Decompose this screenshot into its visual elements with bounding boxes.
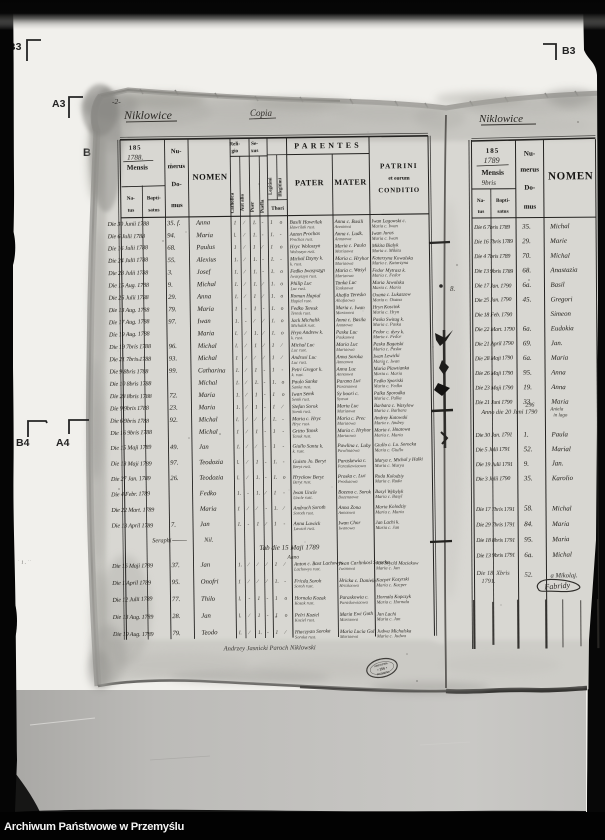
svg-text:-: - bbox=[284, 579, 286, 585]
svg-text:49.: 49. bbox=[170, 444, 179, 451]
svg-text:1: 1 bbox=[255, 429, 258, 435]
svg-text:Thilo: Thilo bbox=[201, 596, 216, 603]
svg-text:Nu-: Nu- bbox=[524, 150, 536, 158]
svg-text:1.: 1. bbox=[524, 431, 530, 439]
svg-text:Alexius: Alexius bbox=[196, 256, 217, 263]
svg-text:-: - bbox=[281, 367, 283, 373]
svg-text:Die 30 Junii 1788: Die 30 Junii 1788 bbox=[107, 221, 149, 228]
svg-text:1: 1 bbox=[255, 392, 258, 398]
svg-text:Jan: Jan bbox=[199, 444, 209, 451]
svg-text:Puer: Puer bbox=[251, 201, 256, 212]
svg-text:1.: 1. bbox=[238, 562, 242, 568]
svg-text:-: - bbox=[280, 257, 282, 263]
svg-text:Andrzey Jasnicki Paroch Niklo: Andrzey Jasnicki Paroch Niklowski bbox=[223, 644, 316, 652]
svg-text:-: - bbox=[245, 306, 247, 312]
svg-text:Luc rust.: Luc rust. bbox=[290, 360, 307, 365]
svg-text:Jan: Jan bbox=[201, 613, 211, 620]
svg-text:1.: 1. bbox=[271, 306, 275, 312]
svg-text:Tankaowa: Tankaowa bbox=[335, 285, 354, 290]
svg-text:Maria c. Oxana: Maria c. Oxana bbox=[372, 297, 403, 302]
svg-text:-: - bbox=[282, 429, 284, 435]
svg-text:1: 1 bbox=[275, 562, 278, 568]
svg-text:Die 1 April 1789: Die 1 April 1789 bbox=[111, 580, 151, 587]
svg-text:Paraskowiaowa: Paraskowiaowa bbox=[339, 600, 369, 605]
svg-text:6a.: 6a. bbox=[524, 551, 533, 559]
svg-text:l.: l. bbox=[239, 613, 242, 619]
svg-text:Maria c. Marya: Maria c. Marya bbox=[374, 463, 405, 468]
svg-text:Eudokia: Eudokia bbox=[550, 325, 575, 332]
svg-text:Die 13 Aug. 1789: Die 13 Aug. 1789 bbox=[112, 615, 154, 621]
svg-text:45.: 45. bbox=[523, 296, 532, 304]
svg-text:Luc rust.: Luc rust. bbox=[290, 347, 307, 352]
svg-text:-: - bbox=[263, 306, 265, 312]
svg-text:Annaowa: Annaowa bbox=[334, 236, 352, 241]
svg-text:Die 25 Jan. 1790: Die 25 Jan. 1790 bbox=[473, 297, 511, 304]
svg-text:Paraskewiaowa: Paraskewiaowa bbox=[337, 463, 367, 468]
svg-text:Die 13 Maji 1789: Die 13 Maji 1789 bbox=[110, 461, 152, 467]
svg-text:1.: 1. bbox=[273, 459, 277, 465]
svg-text:Die 30 Jan. 1791: Die 30 Jan. 1791 bbox=[474, 432, 512, 439]
svg-text:in lago: in lago bbox=[553, 413, 568, 418]
svg-text:A3: A3 bbox=[52, 98, 66, 110]
svg-text:1: 1 bbox=[254, 306, 257, 312]
svg-text:1.: 1. bbox=[236, 380, 240, 386]
svg-text:Maria: Maria bbox=[551, 536, 570, 543]
svg-text:Die 22 Mart. 1789: Die 22 Mart. 1789 bbox=[110, 508, 154, 514]
svg-text:99.: 99. bbox=[169, 368, 178, 375]
svg-text:Michal: Michal bbox=[551, 505, 572, 512]
svg-text:19.: 19. bbox=[523, 383, 532, 391]
svg-text:-: - bbox=[267, 613, 269, 619]
svg-text:1.: 1. bbox=[253, 269, 257, 275]
svg-text:Niklowice: Niklowice bbox=[123, 108, 173, 122]
svg-text:3.: 3. bbox=[167, 269, 173, 276]
svg-text:1.: 1. bbox=[258, 630, 262, 636]
svg-text:1: 1 bbox=[236, 429, 239, 435]
svg-text:1.: 1. bbox=[236, 405, 240, 411]
svg-text:1791.: 1791. bbox=[482, 578, 496, 585]
svg-text:l.: l. bbox=[234, 233, 237, 239]
svg-text:Reli-: Reli- bbox=[229, 141, 240, 147]
svg-text:185: 185 bbox=[129, 145, 142, 152]
svg-text:1.: 1. bbox=[236, 444, 240, 450]
svg-text:84.: 84. bbox=[524, 520, 533, 528]
svg-text:Basil: Basil bbox=[550, 282, 564, 289]
svg-text:Die 21 April 1790: Die 21 April 1790 bbox=[474, 341, 514, 348]
svg-text:1.: 1. bbox=[253, 282, 257, 288]
svg-text:Jan.: Jan. bbox=[552, 461, 564, 468]
svg-text:o: o bbox=[281, 306, 284, 312]
svg-text:-: - bbox=[283, 490, 285, 496]
svg-text:1.: 1. bbox=[254, 331, 258, 337]
svg-text:Josef: Josef bbox=[197, 269, 212, 277]
svg-text:Die 9 9bris 1788: Die 9 9bris 1788 bbox=[109, 406, 149, 413]
svg-text:Aniela: Aniela bbox=[549, 407, 564, 412]
svg-text:Maria c. Maria: Maria c. Maria bbox=[373, 432, 403, 437]
svg-text:Michal: Michal bbox=[197, 355, 217, 362]
svg-text:Anna: Anna bbox=[550, 369, 566, 376]
svg-text:Teresk rust.: Teresk rust. bbox=[291, 310, 311, 315]
svg-text:Die 21 Juni 1790: Die 21 Juni 1790 bbox=[474, 400, 512, 407]
svg-text:Michal: Michal bbox=[551, 551, 572, 559]
svg-text:mus: mus bbox=[524, 203, 537, 211]
svg-text:Nil.: Nil. bbox=[203, 537, 213, 544]
svg-text:1: 1 bbox=[275, 630, 278, 636]
svg-text:MATER: MATER bbox=[334, 178, 366, 187]
svg-text:1.: 1. bbox=[271, 257, 275, 263]
svg-text:Marie: Marie bbox=[549, 238, 567, 245]
svg-text:Maria c. Fedor: Maria c. Fedor bbox=[372, 334, 401, 339]
svg-text:Na-: Na- bbox=[127, 196, 135, 202]
svg-text:Anna: Anna bbox=[550, 384, 566, 391]
svg-text:tus: tus bbox=[478, 209, 485, 215]
svg-text:79.: 79. bbox=[172, 630, 181, 637]
svg-text:1: 1 bbox=[274, 490, 277, 496]
svg-text:55.: 55. bbox=[168, 257, 177, 264]
svg-text:9bris: 9bris bbox=[482, 179, 497, 187]
svg-text:Onofri: Onofri bbox=[201, 578, 219, 586]
svg-text:Michalik rust.: Michalik rust. bbox=[290, 323, 316, 328]
svg-text:gio: gio bbox=[231, 148, 238, 154]
svg-text:1: 1 bbox=[256, 522, 259, 528]
svg-text:35.: 35. bbox=[521, 222, 531, 230]
svg-text:-: - bbox=[262, 257, 264, 263]
svg-text:l.: l. bbox=[239, 630, 242, 636]
svg-text:1: 1 bbox=[238, 579, 241, 585]
svg-text:Die 26 Julii 1788: Die 26 Julii 1788 bbox=[108, 295, 149, 302]
svg-text:Mariaowa: Mariaowa bbox=[336, 421, 356, 426]
svg-text:Maria c. Hryn: Maria c. Hryn bbox=[372, 309, 400, 314]
svg-text:Sanka rust.: Sanka rust. bbox=[292, 384, 312, 389]
svg-text:o: o bbox=[280, 269, 283, 275]
svg-text:-: - bbox=[282, 444, 284, 450]
svg-text:Syowa: Syowa bbox=[337, 396, 349, 401]
svg-text:Hapial rust.: Hapial rust. bbox=[290, 298, 312, 303]
svg-text:296: 296 bbox=[525, 403, 534, 409]
svg-text:Die 26 Maji 1790: Die 26 Maji 1790 bbox=[474, 371, 513, 377]
svg-text:-: - bbox=[264, 392, 266, 398]
svg-text:Die 15 Maji 1789: Die 15 Maji 1789 bbox=[109, 445, 151, 452]
svg-text:PATRINI: PATRINI bbox=[380, 162, 418, 170]
svg-text:Maria c. Iwan: Maria c. Iwan bbox=[372, 358, 400, 363]
svg-text:Die 6 7bris 1789: Die 6 7bris 1789 bbox=[473, 225, 510, 231]
svg-text:1: 1 bbox=[254, 368, 257, 374]
svg-text:1.: 1. bbox=[272, 380, 276, 386]
svg-text:Koziel rust.: Koziel rust. bbox=[294, 617, 315, 622]
svg-text:Die 6 Julii 1788: Die 6 Julii 1788 bbox=[107, 234, 145, 240]
svg-text:k. rust.: k. rust. bbox=[292, 372, 304, 377]
svg-text:1.: 1. bbox=[234, 282, 238, 288]
svg-text:Die 19 Aug. 1789: Die 19 Aug. 1789 bbox=[112, 632, 154, 638]
svg-text:Maria: Maria bbox=[551, 521, 570, 528]
svg-text:Anna: Anna bbox=[195, 219, 211, 227]
svg-text:Proskaowa: Proskaowa bbox=[337, 479, 358, 484]
svg-text:68.: 68. bbox=[522, 266, 531, 274]
svg-text:Sorok rust.: Sorok rust. bbox=[292, 409, 311, 414]
svg-text:-: - bbox=[267, 630, 269, 636]
svg-text:Bapti-: Bapti- bbox=[147, 195, 161, 201]
svg-text:52.: 52. bbox=[524, 445, 533, 453]
svg-text:Die 6 9bris 1788: Die 6 9bris 1788 bbox=[109, 419, 149, 425]
svg-text:1: 1 bbox=[273, 429, 276, 435]
svg-text:Iwan: Iwan bbox=[196, 318, 211, 325]
svg-text:-: - bbox=[283, 521, 285, 527]
svg-text:l.: l. bbox=[238, 596, 241, 602]
svg-text:Hrickaowa: Hrickaowa bbox=[338, 583, 359, 588]
svg-text:1: 1 bbox=[234, 245, 237, 251]
svg-text:Paskaowa: Paskaowa bbox=[335, 334, 355, 339]
svg-text:35. f.: 35. f. bbox=[166, 220, 181, 227]
svg-text:1.: 1. bbox=[234, 269, 238, 275]
svg-text:9.: 9. bbox=[168, 282, 174, 289]
svg-text:o: o bbox=[282, 392, 285, 398]
svg-text:Iwanowa: Iwanowa bbox=[338, 566, 356, 571]
svg-text:35.: 35. bbox=[523, 474, 533, 482]
svg-text:1: 1 bbox=[272, 343, 275, 349]
svg-text:1: 1 bbox=[272, 355, 275, 361]
svg-text:1: 1 bbox=[270, 244, 273, 250]
svg-text:-: - bbox=[265, 459, 267, 465]
svg-text:9.: 9. bbox=[524, 460, 530, 468]
svg-text:Michal: Michal bbox=[198, 429, 218, 436]
svg-text:Beryt rust.: Beryt rust. bbox=[293, 464, 312, 469]
svg-text:1: 1 bbox=[253, 245, 256, 251]
svg-text:Maria c. Iwan: Maria c. Iwan bbox=[371, 235, 399, 240]
svg-text:Mariaowa: Mariaowa bbox=[334, 273, 354, 278]
svg-text:l.: l. bbox=[237, 475, 240, 481]
svg-text:Die 17 Jan. 1790: Die 17 Jan. 1790 bbox=[473, 283, 511, 289]
svg-text:Soroth rust.: Soroth rust. bbox=[293, 510, 314, 515]
svg-text:tus: tus bbox=[128, 208, 135, 214]
svg-text:Maria: Maria bbox=[197, 392, 215, 399]
svg-text:29.: 29. bbox=[168, 294, 177, 301]
svg-text:-: - bbox=[266, 596, 268, 602]
svg-text:o: o bbox=[281, 293, 284, 299]
svg-text:Die 15 Maji 1789: Die 15 Maji 1789 bbox=[111, 563, 153, 570]
svg-text:Pawlinaowa: Pawlinaowa bbox=[337, 448, 361, 453]
svg-text:1: 1 bbox=[235, 356, 238, 362]
svg-text:Copia: Copia bbox=[250, 108, 273, 118]
svg-text:Aut alia: Aut alia bbox=[240, 194, 245, 212]
svg-text:1.: 1. bbox=[253, 220, 257, 226]
svg-text:Maria c. Fedko: Maria c. Fedko bbox=[373, 383, 403, 388]
svg-text:1.: 1. bbox=[271, 281, 275, 287]
svg-text:1: 1 bbox=[274, 521, 277, 527]
svg-text:6a.: 6a. bbox=[522, 281, 531, 289]
svg-text:Ahafiaowa: Ahafiaowa bbox=[335, 298, 356, 303]
svg-text:1.: 1. bbox=[235, 368, 239, 374]
svg-text:Jan.: Jan. bbox=[551, 340, 563, 347]
svg-text:Maria c. Maria: Maria c. Maria bbox=[371, 285, 401, 290]
svg-text:a Mikolaj.: a Mikolaj. bbox=[550, 572, 578, 579]
svg-text:1.: 1. bbox=[253, 257, 257, 263]
svg-text:Die 19 Julii 1791: Die 19 Julii 1791 bbox=[475, 462, 513, 468]
svg-text:93.: 93. bbox=[169, 355, 178, 362]
svg-text:Paulus: Paulus bbox=[195, 244, 215, 252]
svg-text:o: o bbox=[284, 596, 287, 602]
svg-text:1.: 1. bbox=[234, 257, 238, 263]
svg-text:Jan: Jan bbox=[200, 562, 210, 569]
svg-text:Die 28 8bris 1788: Die 28 8bris 1788 bbox=[109, 394, 152, 400]
svg-text:CONDITIO: CONDITIO bbox=[378, 187, 420, 195]
svg-text:Thori: Thori bbox=[271, 206, 284, 212]
svg-text:95.: 95. bbox=[523, 369, 532, 377]
svg-text:Maria c. Andrey: Maria c. Andrey bbox=[373, 420, 405, 425]
svg-text:o: o bbox=[283, 475, 286, 481]
svg-text:1: 1 bbox=[270, 220, 273, 226]
svg-text:72.: 72. bbox=[169, 392, 178, 399]
svg-text:96.: 96. bbox=[169, 343, 178, 350]
svg-text:Die 13 9bris 1789: Die 13 9bris 1789 bbox=[473, 269, 513, 275]
svg-text:Maria c. Barbara: Maria c. Barbara bbox=[373, 408, 407, 413]
svg-text:NOMEN: NOMEN bbox=[192, 171, 227, 181]
svg-text:Die 19 7bris 1788: Die 19 7bris 1788 bbox=[108, 344, 151, 351]
svg-text:Maria c. Paska: Maria c. Paska bbox=[372, 322, 402, 327]
svg-text:Die 4 Febr. 1789: Die 4 Febr. 1789 bbox=[110, 491, 150, 498]
svg-text:Do-: Do- bbox=[171, 181, 181, 188]
svg-text:1.: 1. bbox=[256, 475, 260, 481]
svg-text:7.: 7. bbox=[171, 522, 176, 529]
svg-text:1.: 1. bbox=[235, 319, 239, 325]
svg-text:Die 18. Xbris: Die 18. Xbris bbox=[475, 570, 510, 577]
svg-text:-: - bbox=[264, 429, 266, 435]
svg-text:Maria c. Mikita: Maria c. Mikita bbox=[371, 248, 402, 253]
svg-text:8.: 8. bbox=[450, 285, 456, 293]
svg-text:merus: merus bbox=[168, 163, 186, 170]
svg-text:1.: 1. bbox=[271, 294, 275, 300]
svg-text:B4: B4 bbox=[16, 437, 30, 449]
svg-text:Die 4 7bris 1789: Die 4 7bris 1789 bbox=[473, 253, 510, 260]
svg-text:o: o bbox=[285, 613, 288, 619]
svg-text:et eorum: et eorum bbox=[388, 176, 410, 182]
svg-text:PARENTES: PARENTES bbox=[294, 141, 362, 151]
svg-text:1: 1 bbox=[275, 613, 278, 619]
svg-text:1: 1 bbox=[258, 613, 261, 619]
svg-text:-: - bbox=[262, 232, 264, 238]
svg-text:Die 18 8bris 1791: Die 18 8bris 1791 bbox=[475, 538, 515, 544]
svg-text:Die 28 Maji 1790: Die 28 Maji 1790 bbox=[474, 355, 513, 362]
svg-text:Karolio: Karolio bbox=[551, 475, 574, 482]
svg-text:Iwasyszyn rust.: Iwasyszyn rust. bbox=[289, 273, 317, 278]
svg-text:95.: 95. bbox=[172, 579, 181, 586]
svg-text:1: 1 bbox=[255, 405, 258, 411]
svg-text:Die 9 8bris 1788: Die 9 8bris 1788 bbox=[109, 369, 149, 375]
svg-text:Catharina: Catharina bbox=[198, 367, 226, 374]
svg-text:Die 16 7bris 1789: Die 16 7bris 1789 bbox=[473, 239, 513, 246]
svg-text:Die 17 Aug. 1788: Die 17 Aug. 1788 bbox=[108, 319, 150, 326]
svg-text:Anna: Anna bbox=[196, 293, 212, 300]
svg-text:1.: 1. bbox=[255, 380, 259, 386]
svg-text:Michal: Michal bbox=[549, 223, 570, 230]
svg-text:Teodozia: Teodozia bbox=[199, 459, 224, 466]
svg-text:k. rust.: k. rust. bbox=[290, 261, 302, 266]
svg-text:-: - bbox=[247, 522, 249, 528]
svg-text:Die 17 7bris 1791: Die 17 7bris 1791 bbox=[475, 507, 515, 513]
svg-text:23.: 23. bbox=[169, 405, 178, 412]
svg-text:-: - bbox=[247, 491, 249, 497]
svg-text:Michal: Michal bbox=[196, 281, 216, 288]
svg-text:Catholica: Catholica bbox=[230, 192, 235, 213]
svg-text:Iwanowa: Iwanowa bbox=[338, 525, 356, 530]
svg-text:Die 13 9bris 1791: Die 13 9bris 1791 bbox=[475, 553, 515, 560]
svg-text:Michal: Michal bbox=[198, 416, 218, 423]
svg-text:95.: 95. bbox=[524, 535, 533, 543]
svg-text:Die 29 7bris 1791: Die 29 7bris 1791 bbox=[475, 522, 515, 528]
svg-text:Maria: Maria bbox=[196, 330, 215, 337]
svg-text:Mariaowa: Mariaowa bbox=[339, 617, 359, 622]
svg-text:-: - bbox=[282, 416, 284, 422]
svg-text:Annaowa: Annaowa bbox=[336, 371, 354, 376]
svg-text:Luc rust.: Luc rust. bbox=[289, 286, 306, 291]
svg-text:6a.: 6a. bbox=[523, 354, 532, 362]
svg-text:1: 1 bbox=[237, 506, 240, 512]
svg-text:Nu-: Nu- bbox=[171, 148, 182, 155]
svg-text:97.: 97. bbox=[170, 459, 179, 466]
svg-text:Maria: Maria bbox=[197, 404, 215, 411]
svg-text:1: 1 bbox=[275, 596, 278, 602]
svg-text:Lachowys rust.: Lachowys rust. bbox=[293, 566, 321, 571]
svg-text:-: - bbox=[262, 220, 264, 226]
svg-text:Archiwum Państwowe w Przemyślu: Archiwum Państwowe w Przemyślu bbox=[4, 821, 184, 833]
svg-text:PATER: PATER bbox=[295, 178, 324, 187]
svg-text:-: - bbox=[264, 380, 266, 386]
svg-text:1789: 1789 bbox=[484, 156, 500, 165]
svg-text:-: - bbox=[264, 404, 266, 410]
svg-text:Maria c. Palka: Maria c. Palka bbox=[373, 395, 402, 400]
svg-text:Woloszyn rust.: Woloszyn rust. bbox=[290, 249, 316, 254]
svg-text:1.: 1. bbox=[273, 417, 277, 423]
svg-text:satus: satus bbox=[148, 207, 159, 213]
svg-text:Mariaowa: Mariaowa bbox=[336, 408, 356, 413]
svg-text:Maria: Maria bbox=[195, 232, 213, 239]
svg-text:Michal: Michal bbox=[197, 380, 217, 387]
svg-text:1.: 1. bbox=[275, 579, 279, 585]
svg-text:Maria c. Jan: Maria c. Jan bbox=[375, 525, 400, 530]
svg-text:Anno die 20 Juni 1790: Anno die 20 Juni 1790 bbox=[480, 409, 538, 416]
svg-text:-2-: -2- bbox=[112, 97, 121, 106]
svg-text:Die 10 8bris 1788: Die 10 8bris 1788 bbox=[109, 381, 152, 388]
svg-text:-: - bbox=[264, 444, 266, 450]
svg-text:o: o bbox=[280, 244, 283, 250]
svg-text:70.: 70. bbox=[522, 252, 531, 260]
svg-text:Die 16 9bris 1788: Die 16 9bris 1788 bbox=[109, 430, 152, 437]
svg-text:6a.: 6a. bbox=[523, 325, 532, 333]
svg-text:1.: 1. bbox=[271, 269, 275, 275]
svg-text:Prochas rust.: Prochas rust. bbox=[289, 237, 314, 242]
svg-text:1.: 1. bbox=[274, 506, 278, 512]
svg-text:Mariaowa: Mariaowa bbox=[334, 261, 354, 266]
svg-text:Soroh rust.: Soroh rust. bbox=[294, 583, 313, 588]
svg-text:Do-: Do- bbox=[524, 184, 536, 192]
svg-text:28.: 28. bbox=[172, 613, 181, 620]
svg-text:Maria c. Ruda: Maria c. Ruda bbox=[374, 478, 402, 483]
svg-text:Annaowa: Annaowa bbox=[334, 224, 352, 229]
svg-text:Maria: Maria bbox=[550, 399, 569, 406]
svg-text:-: - bbox=[280, 232, 282, 238]
svg-text:-: - bbox=[265, 506, 267, 512]
svg-text:A4: A4 bbox=[56, 437, 70, 449]
svg-text:Maria c. Maria: Maria c. Maria bbox=[374, 509, 404, 514]
svg-text:Tansk rust.: Tansk rust. bbox=[292, 433, 311, 438]
svg-text:Illegitimi: Illegitimi bbox=[278, 177, 283, 196]
svg-text:Na-: Na- bbox=[477, 198, 485, 204]
svg-text:97.: 97. bbox=[168, 318, 177, 325]
svg-text:Paranaowa: Paranaowa bbox=[336, 384, 358, 389]
svg-text:Lawick rust.: Lawick rust. bbox=[293, 526, 316, 531]
svg-text:Semk rust.: Semk rust. bbox=[292, 397, 310, 402]
svg-text:Maria c. Iwan: Maria c. Iwan bbox=[371, 223, 399, 228]
svg-text:mus: mus bbox=[171, 202, 183, 209]
